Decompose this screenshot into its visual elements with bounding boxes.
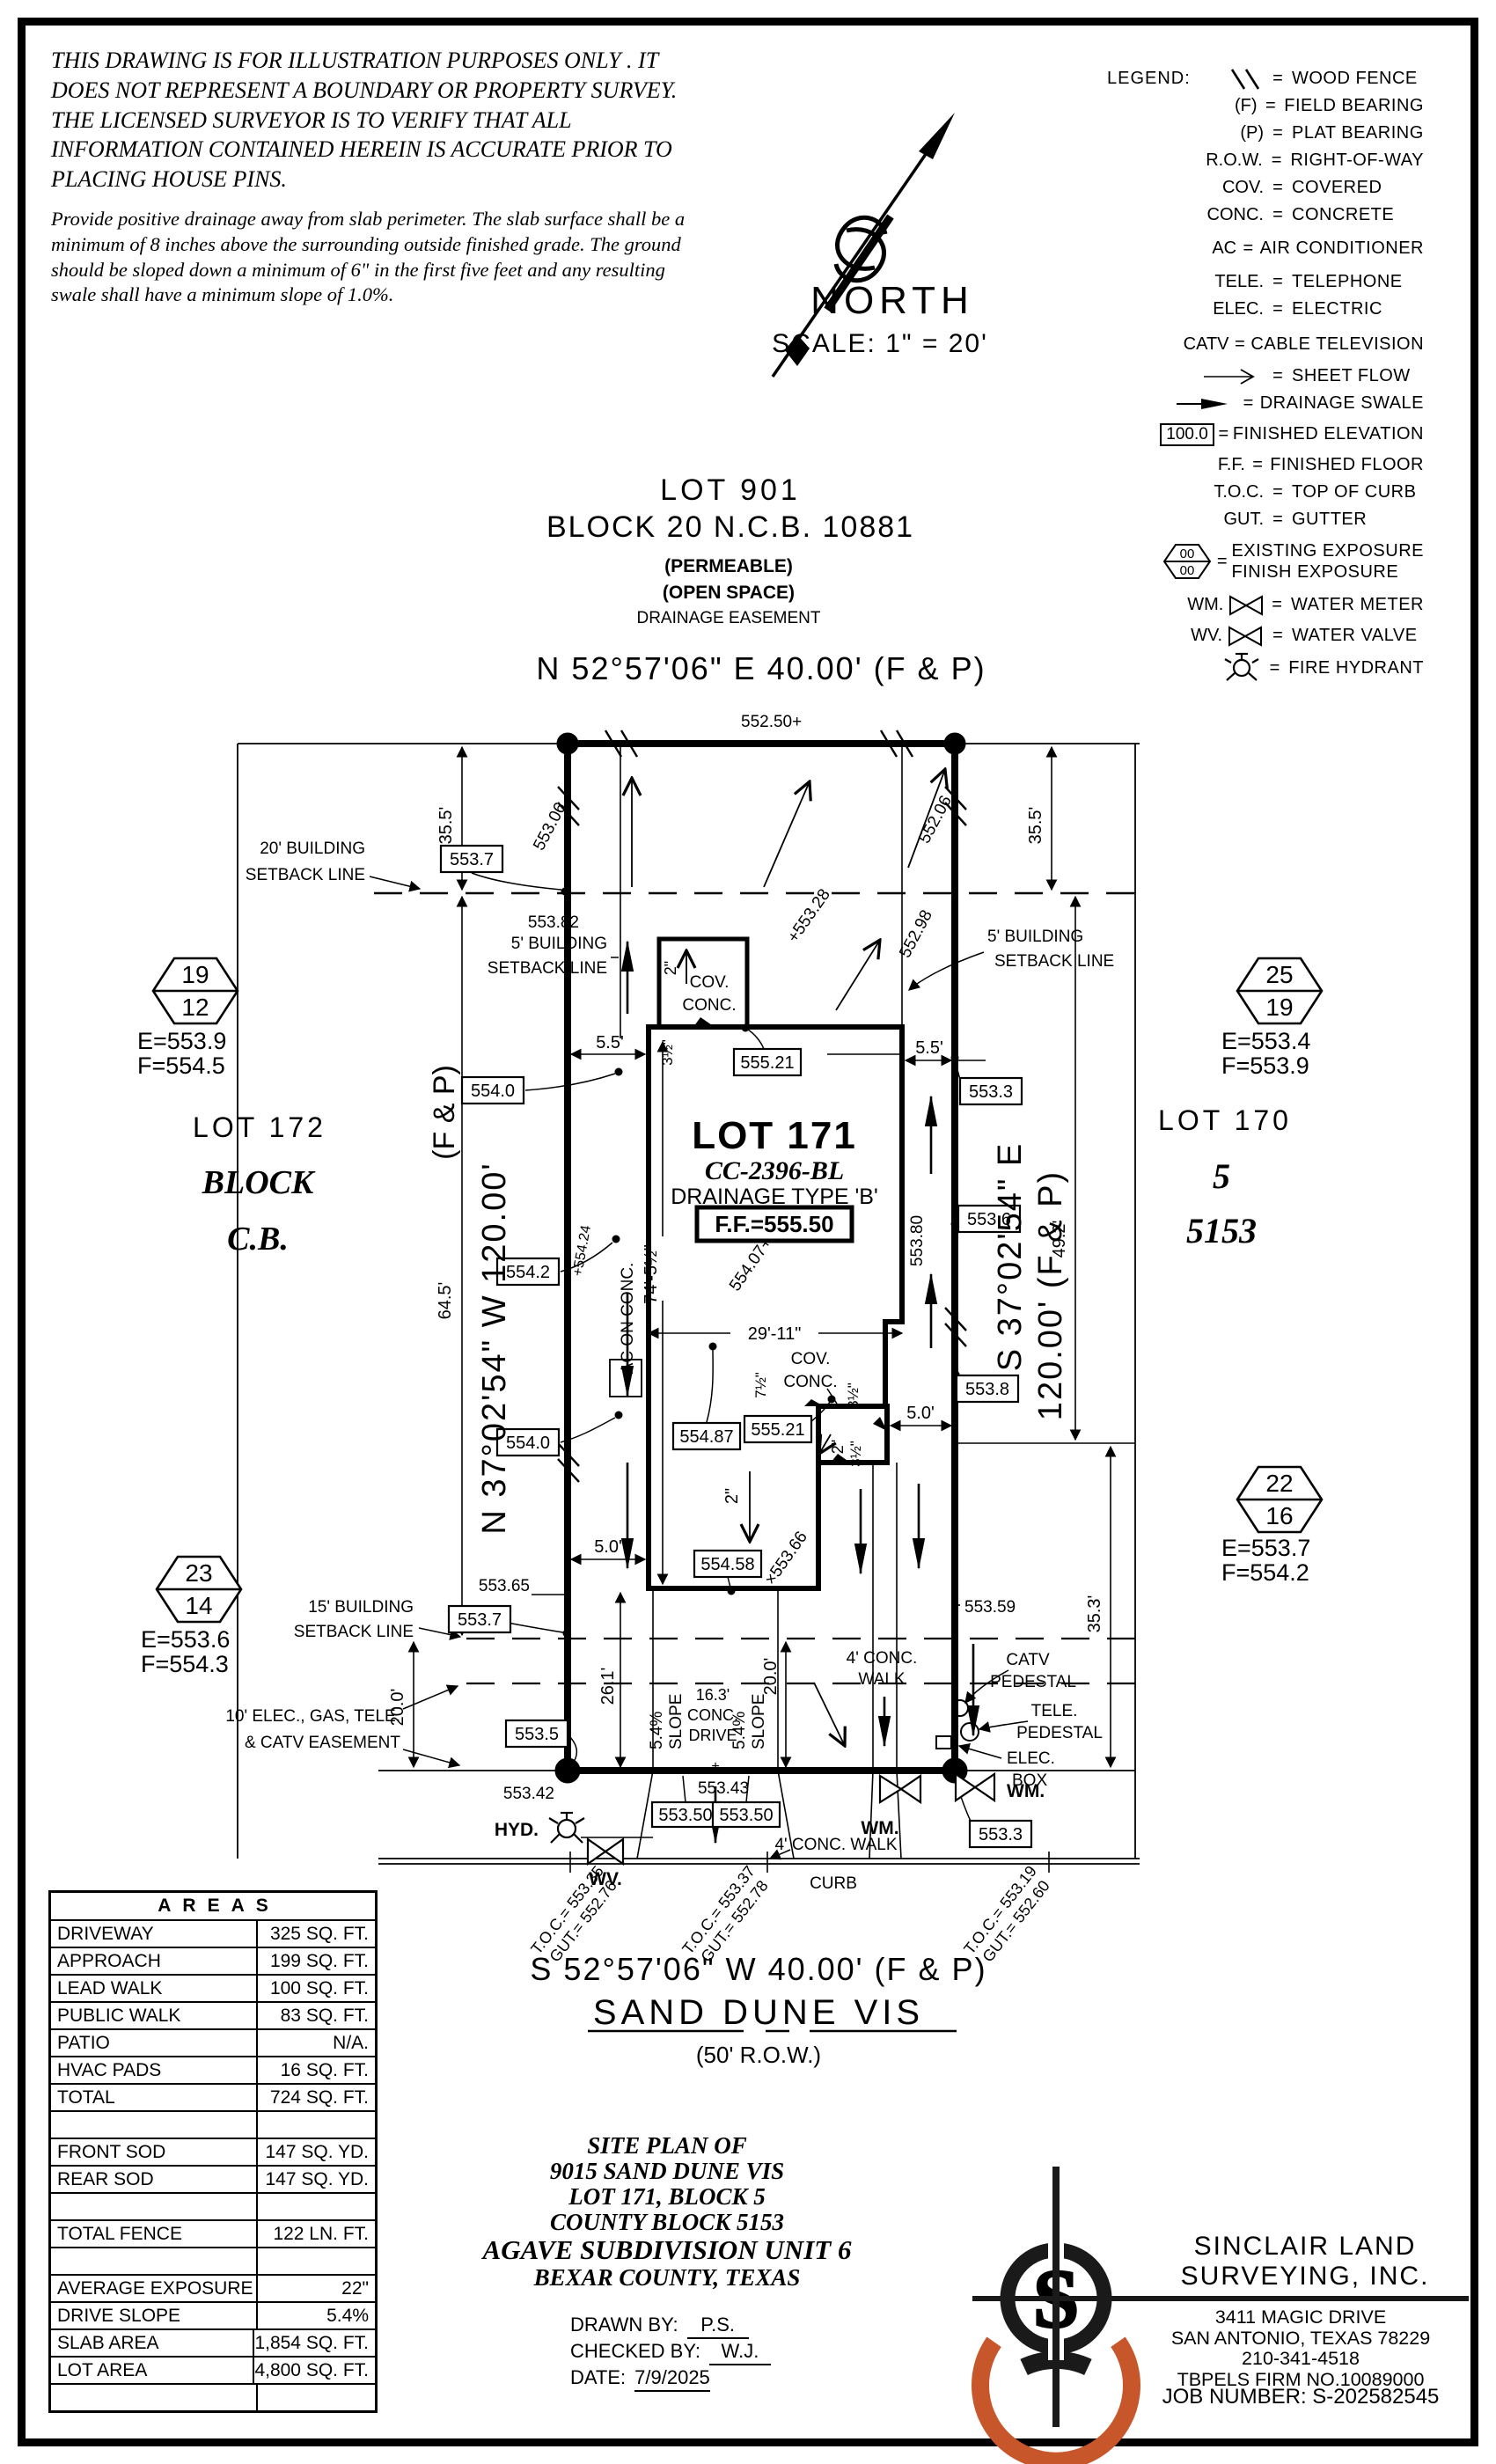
tele-pedestal-symbol	[961, 1723, 979, 1741]
exposure-finish: 12	[181, 994, 209, 1021]
finished-elevation-label: 555.21	[751, 1420, 804, 1440]
table-row: LOT AREA4,800 SQ. FT.	[51, 2358, 375, 2385]
area-value: 1,854 SQ. FT.	[254, 2330, 375, 2356]
finished-elevation-label: 553.8	[965, 1380, 1009, 1399]
date-value: 7/9/2025	[634, 2365, 710, 2392]
lot901-permeable: (PERMEABLE)	[664, 556, 793, 576]
lot901-open-space: (OPEN SPACE)	[663, 583, 795, 603]
covered-concrete-label-1: COV.	[791, 1350, 831, 1368]
table-row: DRIVEWAY325 SQ. FT.	[51, 1921, 375, 1948]
street-name: SAND DUNE VIS	[593, 1993, 924, 2032]
checked-by-value: W.J.	[709, 2339, 771, 2365]
area-label: TOTAL FENCE	[51, 2221, 258, 2247]
public-walk-label: 4' CONC. WALK	[774, 1836, 897, 1854]
table-row: AVERAGE EXPOSURE22"	[51, 2276, 375, 2303]
catv-pedestal-label-2: PEDESTAL	[990, 1673, 1076, 1691]
hydrant-label: HYD.	[495, 1820, 539, 1840]
table-row: HVAC PADS16 SQ. FT.	[51, 2057, 375, 2085]
table-row: FRONT SOD147 SQ. YD.	[51, 2139, 375, 2167]
checked-by-label: CHECKED BY:	[570, 2340, 700, 2362]
elevation-label: 553.59	[964, 1598, 1016, 1617]
water-meter-label: WM.	[1007, 1781, 1045, 1801]
tele-pedestal-label-2: PEDESTAL	[1016, 1724, 1103, 1742]
finish-grade-label: F=553.9	[1221, 1052, 1309, 1079]
areas-table-header: AREAS	[51, 1893, 375, 1921]
table-row: APPROACH199 SQ. FT.	[51, 1948, 375, 1976]
area-label: APPROACH	[51, 1948, 258, 1974]
bearing-west-label: N 37°02'54" W 120.00'	[476, 1162, 513, 1534]
area-label: DRIVE SLOPE	[51, 2303, 258, 2328]
area-label: PUBLIC WALK	[51, 2003, 258, 2028]
table-row-blank	[51, 2248, 375, 2276]
finished-floor-label: F.F.=555.50	[715, 1211, 833, 1237]
setback-15-label-1: 15' BUILDING	[308, 1598, 414, 1617]
setback-20-label-1: 20' BUILDING	[260, 840, 365, 858]
dimension-label: 5.0'	[594, 1537, 622, 1557]
existing-grade-label: E=553.7	[1221, 1535, 1310, 1561]
elevation-label: +554.24	[570, 1224, 594, 1277]
finished-elevation-label: 553.50	[658, 1806, 712, 1825]
finished-elevation-label: 553.5	[515, 1725, 559, 1744]
firm-street: 3411 MAGIC DRIVE	[1140, 2307, 1462, 2328]
area-label: LOT AREA	[51, 2358, 254, 2383]
table-row: PUBLIC WALK83 SQ. FT.	[51, 2003, 375, 2030]
bearing-north-label: N 52°57'06" E 40.00' (F & P)	[536, 650, 986, 686]
dimension-label: 20.0'	[388, 1689, 407, 1727]
finished-elevation-label: 553.3	[979, 1825, 1023, 1844]
job-number: JOB NUMBER: S-202582545	[1140, 2385, 1462, 2409]
lot901-block-ncb: BLOCK 20 N.C.B. 10881	[546, 510, 914, 544]
bearing-east-fp: 120.00' (F & P)	[1032, 1170, 1069, 1420]
lot170-block: 5	[1213, 1156, 1230, 1196]
dimension-label: 26.1'	[598, 1668, 618, 1705]
dimension-label: 2"	[662, 961, 679, 975]
bearing-south-label: S 52°57'06" W 40.00' (F & P)	[530, 1951, 986, 1987]
lot172-cb: C.B.	[227, 1221, 289, 1258]
date-label: DATE:	[570, 2366, 626, 2388]
elevation-label: 553.80	[908, 1215, 927, 1266]
lot172-label: LOT 172	[193, 1111, 326, 1143]
area-value: 16 SQ. FT.	[258, 2057, 375, 2083]
easement-label-2: & CATV EASEMENT	[245, 1734, 400, 1752]
finish-grade-label: F=554.5	[137, 1052, 225, 1079]
dimension-label: 35.5'	[436, 807, 456, 845]
scale-label: SCALE: 1" = 20'	[772, 329, 988, 358]
elevation-label: 553.43	[698, 1779, 749, 1798]
drawn-by-row: DRAWN BY:P.S.	[570, 2313, 861, 2339]
finished-elevation-label: 554.87	[679, 1427, 733, 1447]
drive-label-3: DRIVE	[688, 1727, 737, 1744]
area-value: 325 SQ. FT.	[258, 1921, 375, 1947]
lot171-cc-number: CC-2396-BL	[705, 1156, 844, 1185]
title-line-6: BEXAR COUNTY, TEXAS	[475, 2265, 859, 2291]
exposure-existing: 19	[181, 961, 209, 988]
area-value: 100 SQ. FT.	[258, 1976, 375, 2001]
finished-elevation-label: 554.58	[700, 1555, 754, 1574]
setback-5-right-2: SETBACK LINE	[994, 952, 1114, 971]
elec-box-label-1: ELEC.	[1007, 1749, 1055, 1768]
area-label: DRIVEWAY	[51, 1921, 258, 1947]
dimension-label: 5.0'	[906, 1404, 935, 1423]
finished-elevation-label: 554.0	[471, 1082, 515, 1101]
dimension-label: 3½"	[659, 1039, 676, 1066]
elevation-label: 552.06	[915, 793, 956, 847]
table-row-blank	[51, 2385, 375, 2410]
area-value: 199 SQ. FT.	[258, 1948, 375, 1974]
exposure-finish: 19	[1265, 994, 1293, 1021]
water-meter-label: WM.	[861, 1818, 898, 1838]
elevation-label: 552.50+	[741, 713, 802, 731]
curb-label: CURB	[810, 1874, 857, 1893]
slope-word: SLOPE	[667, 1694, 686, 1749]
covered-concrete-label-2: CONC.	[682, 996, 736, 1015]
bearing-east-label: S 37°02'54" E	[992, 1142, 1029, 1372]
areas-table: AREAS DRIVEWAY325 SQ. FT. APPROACH199 SQ…	[48, 1890, 378, 2413]
street-row: (50' R.O.W.)	[696, 2042, 821, 2068]
lead-walk-label-2: WALK	[858, 1670, 905, 1689]
fire-hydrant-symbol	[549, 1813, 584, 1843]
drive-label-1: 16.3'	[696, 1686, 730, 1704]
water-meter-symbol-2	[956, 1774, 994, 1800]
area-label: LEAD WALK	[51, 1976, 258, 2001]
table-row-blank	[51, 2194, 375, 2221]
finished-elevation-label: 553.7	[450, 850, 494, 869]
area-label: PATIO	[51, 2030, 258, 2056]
title-line-2: 9015 SAND DUNE VIS	[475, 2159, 859, 2184]
lot171-label: LOT 171	[692, 1114, 857, 1157]
setback-15-label-2: SETBACK LINE	[294, 1623, 414, 1641]
area-value: 122 LN. FT.	[258, 2221, 375, 2247]
drawn-by-label: DRAWN BY:	[570, 2314, 678, 2336]
area-value: 22"	[258, 2276, 375, 2301]
lot901-block: LOT 901 BLOCK 20 N.C.B. 10881 (PERMEABLE…	[536, 473, 986, 686]
area-label: SLAB AREA	[51, 2330, 254, 2356]
dimension-label: 2"	[722, 1488, 742, 1504]
dimension-label: 20.0'	[761, 1658, 781, 1696]
table-row: PATION/A.	[51, 2030, 375, 2057]
point-mark: +	[711, 1759, 719, 1774]
lot172-block: BLOCK	[202, 1164, 316, 1201]
elevation-label: 553.82	[528, 913, 579, 932]
firm-name: SINCLAIR LAND SURVEYING, INC.	[1160, 2232, 1450, 2291]
title-line-4: COUNTY BLOCK 5153	[475, 2210, 859, 2235]
dimension-label: 3½"	[847, 1441, 864, 1467]
site-plan-sheet: THIS DRAWING IS FOR ILLUSTRATION PURPOSE…	[0, 0, 1496, 2464]
water-valve-symbol	[588, 1839, 623, 1864]
table-row: DRIVE SLOPE5.4%	[51, 2303, 375, 2330]
area-label: REAR SOD	[51, 2167, 258, 2192]
dimension-label: 29'-11"	[748, 1324, 802, 1344]
area-value: 83 SQ. FT.	[258, 2003, 375, 2028]
dimension-label: 74'-5½"	[642, 1244, 661, 1304]
area-label: FRONT SOD	[51, 2139, 258, 2165]
finished-elevation-label: 553.3	[969, 1082, 1013, 1102]
lot171-drainage-type: DRAINAGE TYPE 'B'	[671, 1184, 878, 1209]
bearing-west-fp: (F & P)	[428, 1065, 461, 1160]
area-value: 4,800 SQ. FT.	[254, 2358, 375, 2383]
area-label: AVERAGE EXPOSURE	[51, 2276, 258, 2301]
existing-grade-label: E=553.4	[1221, 1028, 1310, 1054]
title-line-5: AGAVE SUBDIVISION UNIT 6	[475, 2235, 859, 2266]
lead-walk-label-1: 4' CONC.	[847, 1649, 918, 1668]
area-value: 147 SQ. YD.	[258, 2139, 375, 2165]
checked-by-row: CHECKED BY:W.J.	[570, 2339, 861, 2365]
area-value: 147 SQ. YD.	[258, 2167, 375, 2192]
firm-phone: 210-341-4518	[1140, 2349, 1462, 2370]
north-arrow: NORTH SCALE: 1" = 20'	[772, 113, 988, 377]
dimension-label: 2"	[829, 1440, 847, 1454]
covered-concrete-label-2: CONC.	[783, 1373, 837, 1391]
area-label: TOTAL	[51, 2085, 258, 2110]
table-row: REAR SOD147 SQ. YD.	[51, 2167, 375, 2194]
signature-block: DRAWN BY:P.S. CHECKED BY:W.J. DATE:7/9/2…	[570, 2313, 861, 2392]
firm-city: SAN ANTONIO, TEXAS 78229	[1140, 2328, 1462, 2350]
title-line-3: LOT 171, BLOCK 5	[475, 2184, 859, 2210]
dimension-label: 35.5'	[1026, 807, 1045, 845]
exposure-existing: 22	[1265, 1470, 1293, 1497]
finished-elevation-label: 555.21	[740, 1053, 794, 1073]
setback-5-left-1: 5' BUILDING	[511, 935, 607, 953]
dimension-label: 7½"	[752, 1372, 769, 1398]
area-value: 724 SQ. FT.	[258, 2085, 375, 2110]
finished-elevation-label: 553.7	[458, 1610, 502, 1630]
elevation-label: 553.42	[503, 1785, 554, 1803]
elec-box-symbol	[936, 1736, 951, 1749]
water-meter-symbol	[880, 1776, 920, 1802]
house-footprint	[649, 1027, 902, 1588]
finish-grade-label: F=554.3	[141, 1651, 229, 1677]
table-row-blank	[51, 2112, 375, 2139]
setback-5-right-1: 5' BUILDING	[987, 928, 1083, 946]
tele-pedestal-label-1: TELE.	[1031, 1702, 1078, 1720]
area-label: HVAC PADS	[51, 2057, 258, 2083]
existing-grade-label: E=553.9	[137, 1028, 226, 1054]
finished-elevation-label: 553.50	[719, 1806, 773, 1825]
north-label: NORTH	[810, 279, 974, 322]
elevation-label: ×553.66	[761, 1528, 811, 1588]
exposure-existing: 25	[1265, 961, 1293, 988]
date-row: DATE:7/9/2025	[570, 2365, 861, 2392]
title-block: SITE PLAN OF 9015 SAND DUNE VIS LOT 171,…	[475, 2133, 859, 2291]
utility-symbols	[549, 1700, 994, 1864]
exposure-finish: 16	[1265, 1502, 1293, 1529]
elevation-label: 554.07+	[726, 1234, 776, 1294]
firm-name-line1: SINCLAIR LAND	[1160, 2232, 1450, 2262]
exposure-existing: 23	[185, 1559, 212, 1587]
dimension-label: 64.5'	[436, 1282, 455, 1320]
dimension-label: 35.3'	[1085, 1595, 1104, 1633]
firm-address: 3411 MAGIC DRIVE SAN ANTONIO, TEXAS 7822…	[1140, 2307, 1462, 2391]
lot170-cb: 5153	[1186, 1211, 1257, 1250]
table-row: LEAD WALK100 SQ. FT.	[51, 1976, 375, 2003]
lot901-drainage-easement: DRAINAGE EASEMENT	[636, 609, 820, 627]
dimension-label: 5.5'	[915, 1038, 943, 1058]
table-row: TOTAL FENCE122 LN. FT.	[51, 2221, 375, 2248]
lot170-label: LOT 170	[1158, 1104, 1292, 1136]
title-line-1: SITE PLAN OF	[475, 2133, 859, 2159]
catv-pedestal-label-1: CATV	[1006, 1651, 1050, 1669]
elevation-label: 553.65	[479, 1577, 530, 1595]
drawn-by-value: P.S.	[687, 2313, 749, 2339]
firm-name-line2: SURVEYING, INC.	[1160, 2262, 1450, 2292]
existing-grade-label: E=553.6	[141, 1626, 230, 1653]
area-value: N/A.	[258, 2030, 375, 2056]
setback-20-label-2: SETBACK LINE	[246, 866, 365, 884]
area-value: 5.4%	[258, 2303, 375, 2328]
setback-5-left-2: SETBACK LINE	[488, 959, 607, 978]
lot901-title: LOT 901	[660, 473, 801, 507]
finish-grade-label: F=554.2	[1221, 1559, 1309, 1586]
dimension-label: 3½"	[845, 1382, 862, 1409]
dimension-label: 5.5'	[596, 1033, 624, 1052]
ac-on-concrete-label: AC ON CONC.	[619, 1263, 637, 1375]
slope-word: SLOPE	[750, 1694, 768, 1749]
table-row: SLAB AREA1,854 SQ. FT.	[51, 2330, 375, 2358]
easement-label-1: 10' ELEC., GAS, TELE.	[225, 1707, 400, 1726]
exposure-finish: 14	[185, 1592, 212, 1619]
elevation-label: +553.28	[784, 885, 834, 946]
table-row: TOTAL724 SQ. FT.	[51, 2085, 375, 2112]
drive-label-2: CONC.	[687, 1706, 738, 1724]
covered-concrete-label-1: COV.	[690, 973, 730, 992]
slope-pct: 5.4%	[648, 1712, 666, 1749]
